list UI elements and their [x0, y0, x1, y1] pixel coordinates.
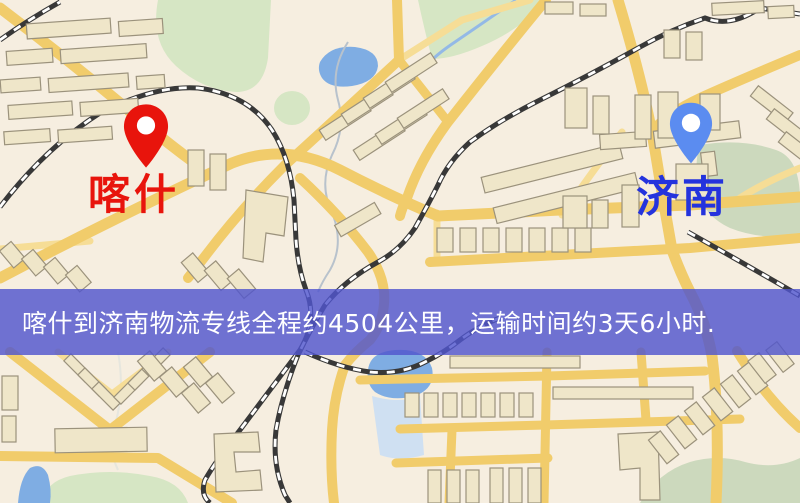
pin-body [670, 103, 712, 164]
map-screenshot: 喀什 济南 喀什到济南物流专线全程约4504公里，运输时间约3天6小时. [0, 0, 800, 503]
destination-label: 济南 [636, 177, 728, 220]
map-canvas [0, 0, 800, 503]
route-info-banner: 喀什到济南物流专线全程约4504公里，运输时间约3天6小时. [0, 289, 800, 355]
map-pin-icon [669, 101, 713, 165]
origin-label: 喀什 [88, 174, 180, 216]
pin-body [124, 104, 168, 167]
map-pin-icon [123, 103, 169, 169]
route-info-text: 喀什到济南物流专线全程约4504公里，运输时间约3天6小时. [0, 304, 715, 340]
pin-hole [137, 116, 155, 134]
destination-map-pin[interactable] [669, 101, 713, 165]
origin-map-pin[interactable] [123, 103, 169, 169]
pin-hole [682, 114, 700, 132]
